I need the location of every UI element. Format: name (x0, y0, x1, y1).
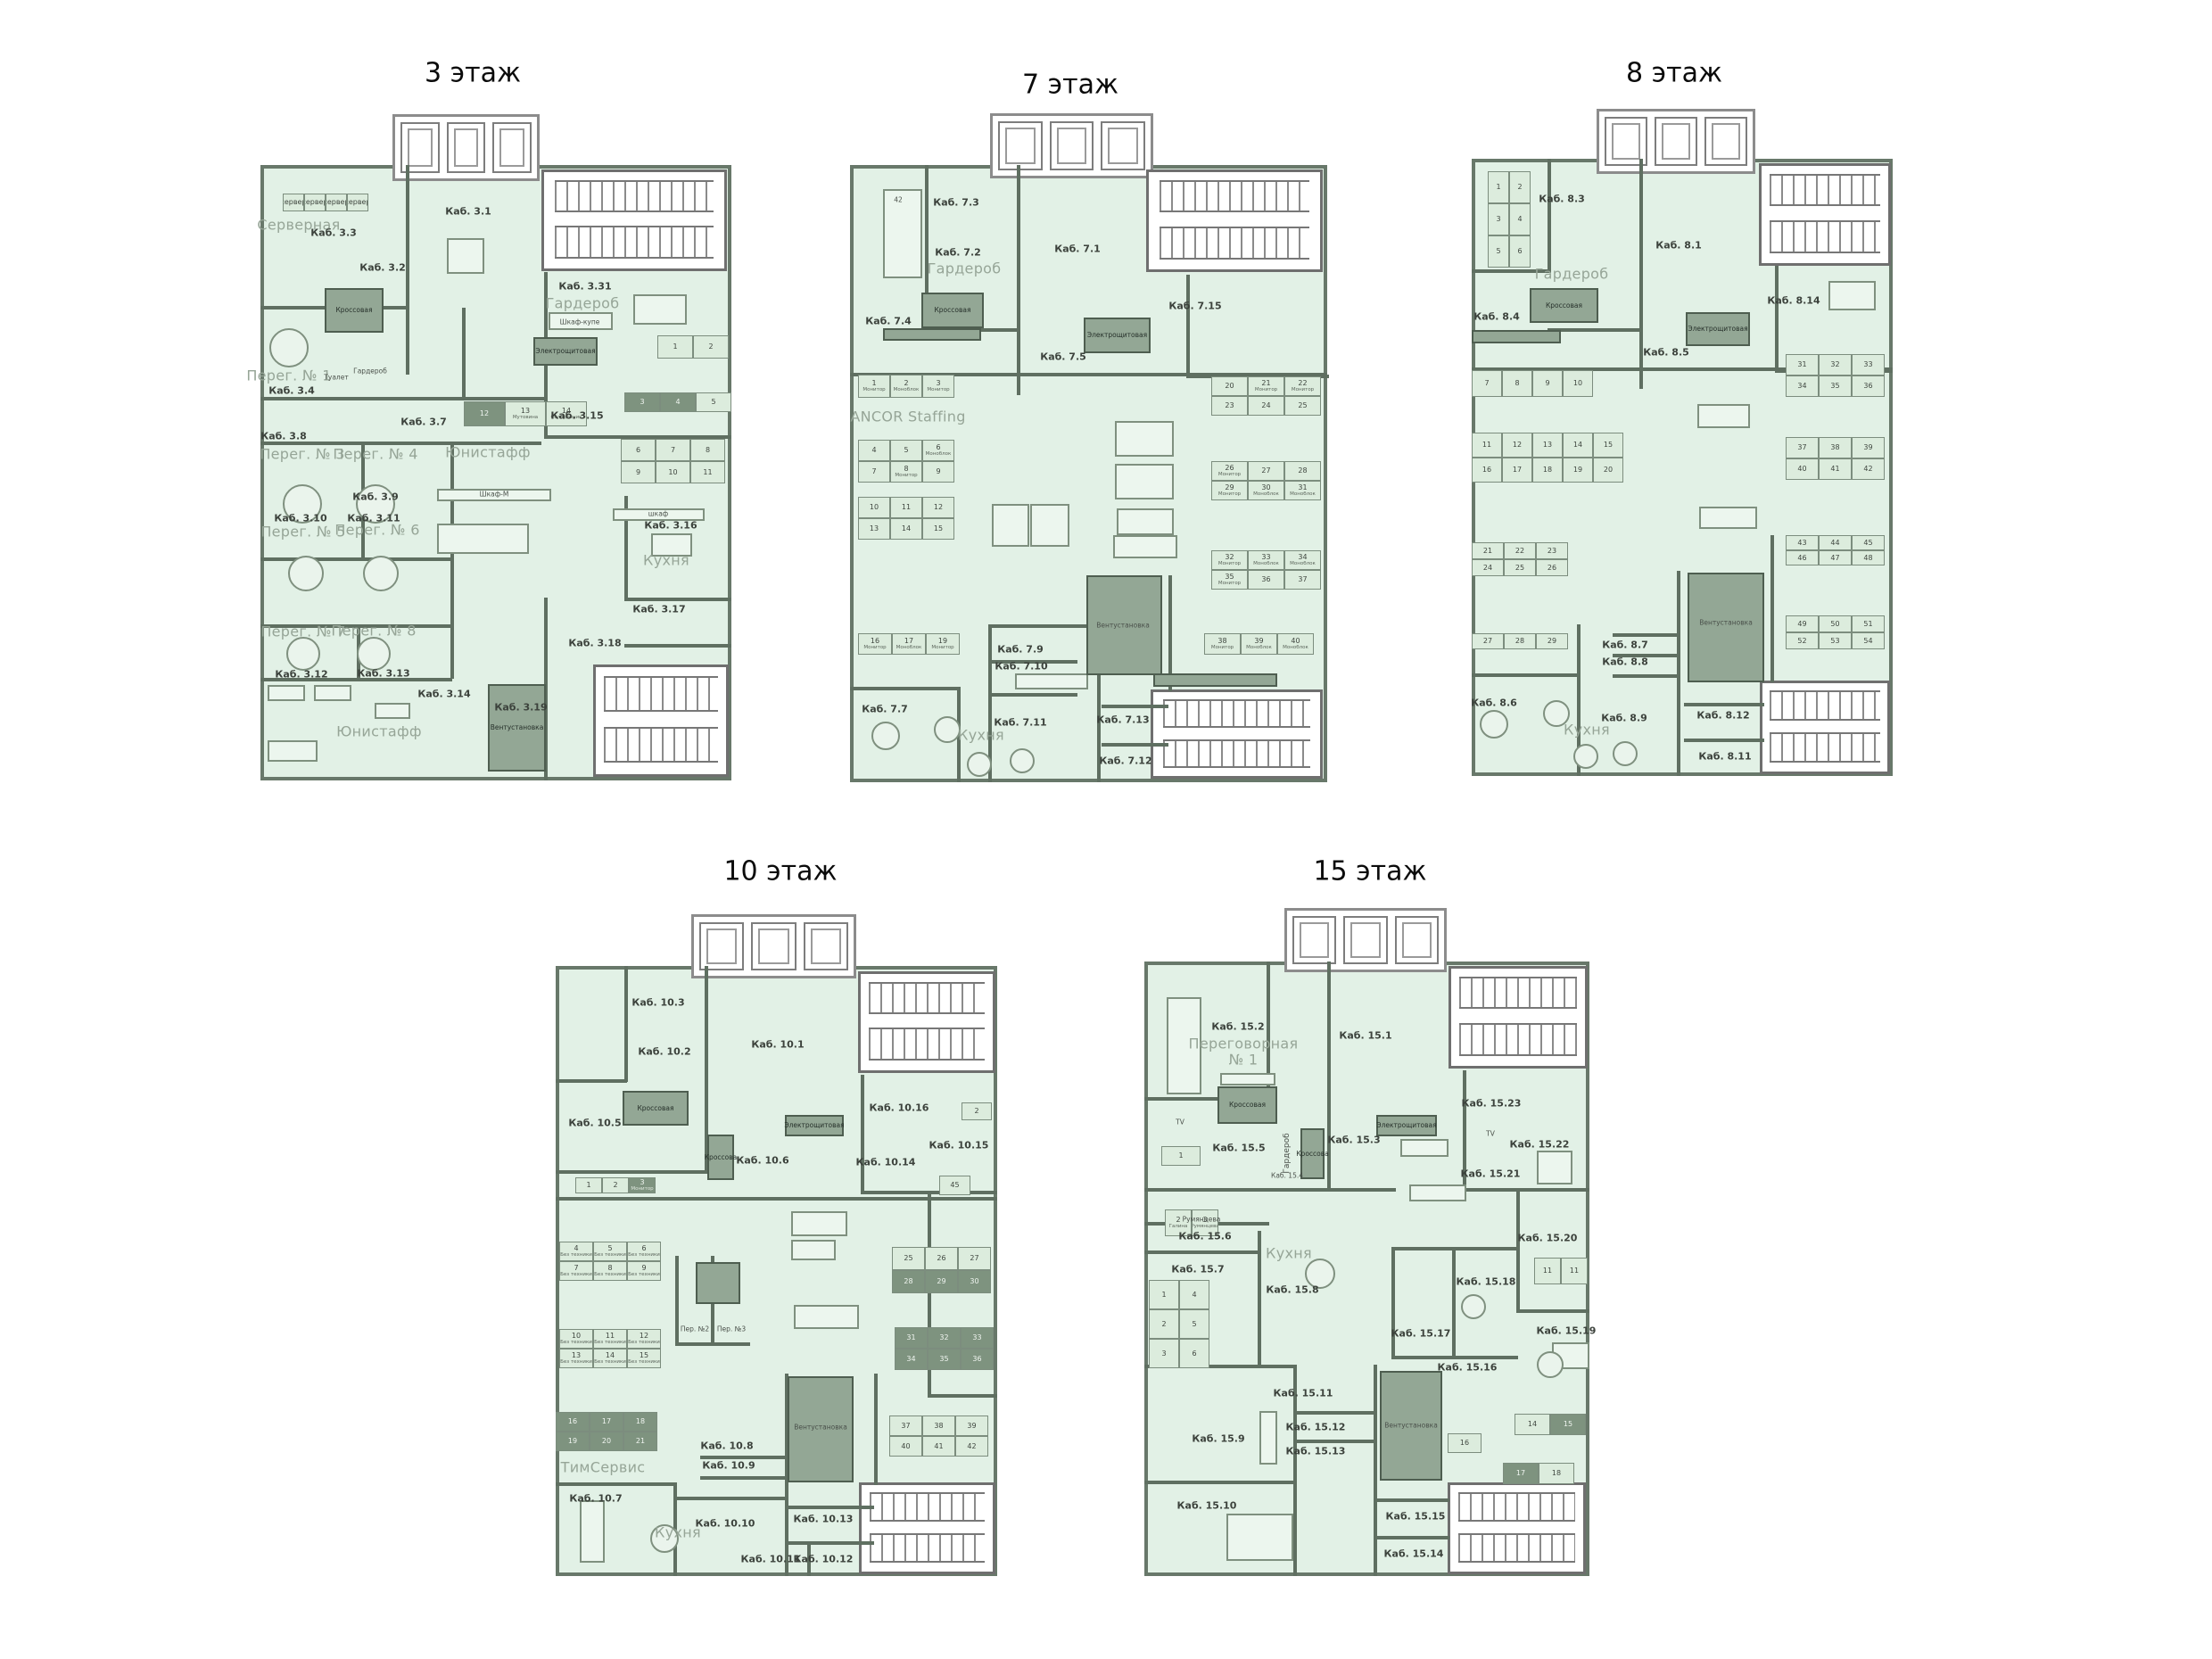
utility-room-block: Кроссова (1300, 1128, 1325, 1179)
interior-wall (1452, 1247, 1456, 1358)
furniture-table (1220, 1073, 1275, 1085)
room-label: Переговорная (1189, 1036, 1299, 1052)
room-label: Кухня (1266, 1245, 1312, 1262)
desk-number: 17 (1516, 1470, 1525, 1477)
desk: 18 (1539, 1463, 1574, 1484)
room-label: Каб. 15.9 (1192, 1433, 1244, 1445)
desk-number: 2 (1161, 1321, 1166, 1328)
desk-caption: Галина (1169, 1225, 1188, 1230)
desk: 11 (1561, 1258, 1588, 1284)
room-label: Каб. 15.18 (1457, 1276, 1516, 1288)
desk-number: 4 (1192, 1292, 1196, 1299)
desk: 6 (1179, 1339, 1209, 1368)
desk-grid: 1 (1161, 1146, 1201, 1166)
interior-wall (1516, 1309, 1589, 1313)
utility-room-block: Кроссовая (1217, 1086, 1277, 1124)
elevator-lobby (1284, 908, 1447, 972)
room-label: TV (1486, 1130, 1495, 1138)
room-label: TV (1176, 1118, 1184, 1127)
desk-number: 14 (1528, 1421, 1537, 1428)
desk: 11 (1534, 1258, 1561, 1284)
desk-number: 11 (1543, 1267, 1552, 1275)
room-label: Каб. 15.7 (1171, 1264, 1224, 1275)
utility-room-label: Электрощитовая (1375, 1121, 1437, 1130)
desk-number: 1 (1161, 1292, 1166, 1299)
furniture-table (1259, 1411, 1277, 1465)
desk: 1 (1161, 1146, 1201, 1166)
room-label: Вентустановка (1384, 1422, 1438, 1430)
interior-wall (1144, 1481, 1296, 1484)
utility-room-block: Электрощитовая (1376, 1115, 1437, 1136)
round-table (1537, 1351, 1564, 1378)
utility-room-label: Кроссова (1295, 1150, 1330, 1159)
furniture-table (1537, 1151, 1572, 1184)
stairwell (1448, 1482, 1586, 1574)
elevator-car (1343, 916, 1387, 964)
room-label: Каб. 15.17 (1391, 1328, 1451, 1340)
desk-grid: 1718 (1503, 1463, 1574, 1484)
room-label: Каб. 15.16 (1438, 1362, 1498, 1374)
floor-15: КроссоваяЭлектрощитоваяКроссова12Галина3… (0, 0, 2212, 1659)
interior-wall (1391, 1247, 1395, 1358)
interior-wall (1293, 1411, 1375, 1415)
desk-grid: 16 (1448, 1433, 1482, 1453)
room-label: Каб. 15.19 (1537, 1325, 1597, 1337)
stair-flight (1458, 1533, 1575, 1563)
desk-grid: 1415 (1515, 1414, 1586, 1435)
interior-wall (1293, 1440, 1375, 1443)
room-label: Румянцева (1183, 1216, 1221, 1224)
furniture-table (1400, 1139, 1449, 1157)
interior-wall (1376, 1536, 1449, 1539)
room-label: Каб. 15.5 (1212, 1143, 1265, 1154)
desk: 3 (1149, 1339, 1179, 1368)
desk-number: 18 (1552, 1470, 1561, 1477)
stair-flight (1458, 1492, 1575, 1522)
room-label: Каб. 15.10 (1177, 1500, 1237, 1512)
room-label: Гардероб (1283, 1133, 1292, 1173)
interior-wall (1144, 1188, 1396, 1192)
interior-wall (1463, 1188, 1589, 1192)
desk-number: 3 (1161, 1350, 1166, 1358)
elevator-car (1395, 916, 1439, 964)
desk-grid: 142536 (1149, 1280, 1209, 1368)
desk-number: 2 (1176, 1217, 1180, 1224)
desk-caption: Румянцева (1192, 1225, 1218, 1230)
desk-grid: 1111 (1534, 1258, 1588, 1284)
desk: 5 (1179, 1309, 1209, 1339)
room-label: Каб. 15.8 (1266, 1284, 1318, 1296)
desk-number: 5 (1192, 1321, 1196, 1328)
room-label: Каб. 15.4 (1271, 1172, 1303, 1180)
stair-flight (1459, 1023, 1577, 1056)
floor-plans-canvas: КроссоваяЭлектрощитоваяВентустановкасерв… (0, 0, 2212, 1659)
room-label: Каб. 15.11 (1274, 1388, 1333, 1399)
round-table (1461, 1294, 1486, 1319)
room-label: Каб. 15.6 (1178, 1231, 1231, 1242)
interior-wall (1374, 1365, 1377, 1576)
desk: 14 (1515, 1414, 1550, 1435)
desk: 2 (1149, 1309, 1179, 1339)
desk-number: 1 (1178, 1152, 1183, 1160)
room-label: Каб. 15.3 (1327, 1135, 1380, 1146)
desk-number: 6 (1192, 1350, 1196, 1358)
interior-wall (1376, 1498, 1449, 1502)
desk-number: 11 (1570, 1267, 1579, 1275)
room-label: Каб. 15.20 (1518, 1233, 1578, 1244)
desk-number: 15 (1564, 1421, 1572, 1428)
floor-title: 15 этаж (1313, 856, 1426, 887)
desk: 4 (1179, 1280, 1209, 1309)
room-label: № 1 (1229, 1052, 1259, 1069)
room-label: Каб. 15.1 (1339, 1030, 1391, 1042)
room-label: Каб. 15.23 (1462, 1098, 1522, 1110)
desk: 17 (1503, 1463, 1539, 1484)
elevator-car (1292, 916, 1336, 964)
room-label: Каб. 15.22 (1510, 1139, 1570, 1151)
room-label: Каб. 15.13 (1286, 1446, 1346, 1457)
desk-number: 16 (1460, 1440, 1469, 1447)
room-label: Каб. 15.2 (1211, 1021, 1264, 1033)
room-label: Каб. 15.14 (1384, 1548, 1444, 1560)
room-label: Каб. 15.21 (1461, 1168, 1521, 1180)
interior-wall (1258, 1231, 1261, 1366)
stairwell (1449, 966, 1588, 1069)
utility-room-label: Кроссовая (1228, 1101, 1267, 1110)
desk: 15 (1550, 1414, 1586, 1435)
desk: 1 (1149, 1280, 1179, 1309)
furniture-table (1409, 1184, 1466, 1201)
stair-flight (1459, 977, 1577, 1010)
interior-wall (1144, 1250, 1260, 1254)
furniture-table (1226, 1514, 1293, 1561)
desk: 16 (1448, 1433, 1482, 1453)
room-label: Каб. 15.15 (1386, 1511, 1446, 1523)
room-label: Каб. 15.12 (1286, 1422, 1346, 1433)
